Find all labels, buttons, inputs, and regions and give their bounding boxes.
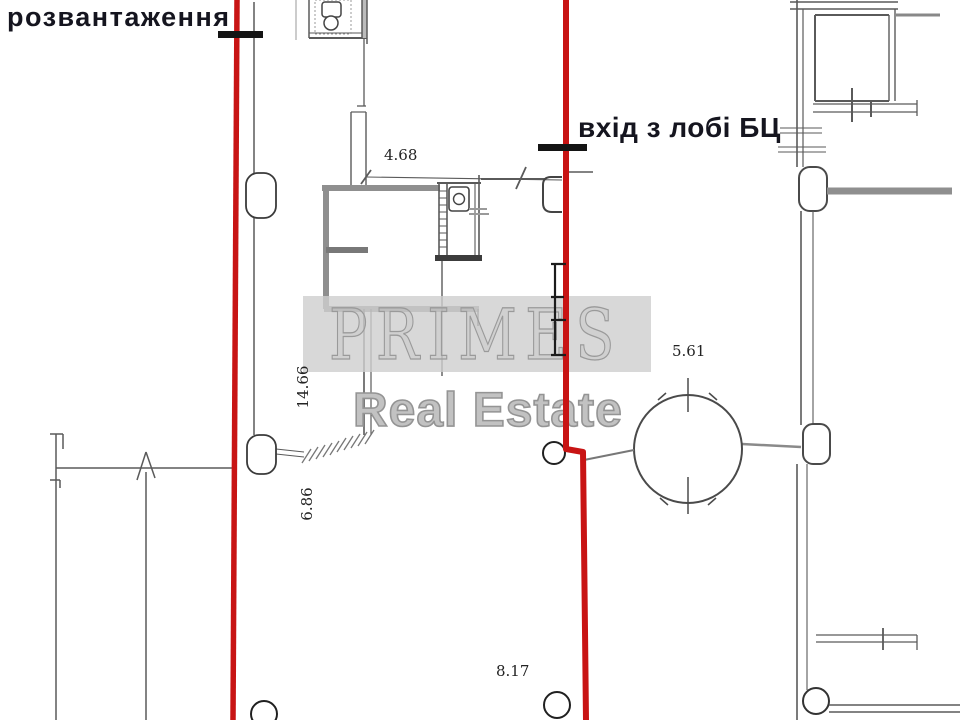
column-marker-circle xyxy=(544,692,570,718)
door-symbol xyxy=(246,173,276,218)
entrance-marker-bar xyxy=(538,144,587,151)
column-marker-circle xyxy=(543,442,565,464)
unloading-marker-bar xyxy=(218,31,263,38)
red-boundary-right xyxy=(566,0,586,720)
floor-plan-canvas: PRIMES Real Estate розвантаження вхід з … xyxy=(0,0,960,720)
column-marker-circle xyxy=(251,701,277,720)
red-boundary-left xyxy=(233,0,237,720)
boundary-overlay xyxy=(0,0,960,720)
door-symbol xyxy=(247,435,276,474)
